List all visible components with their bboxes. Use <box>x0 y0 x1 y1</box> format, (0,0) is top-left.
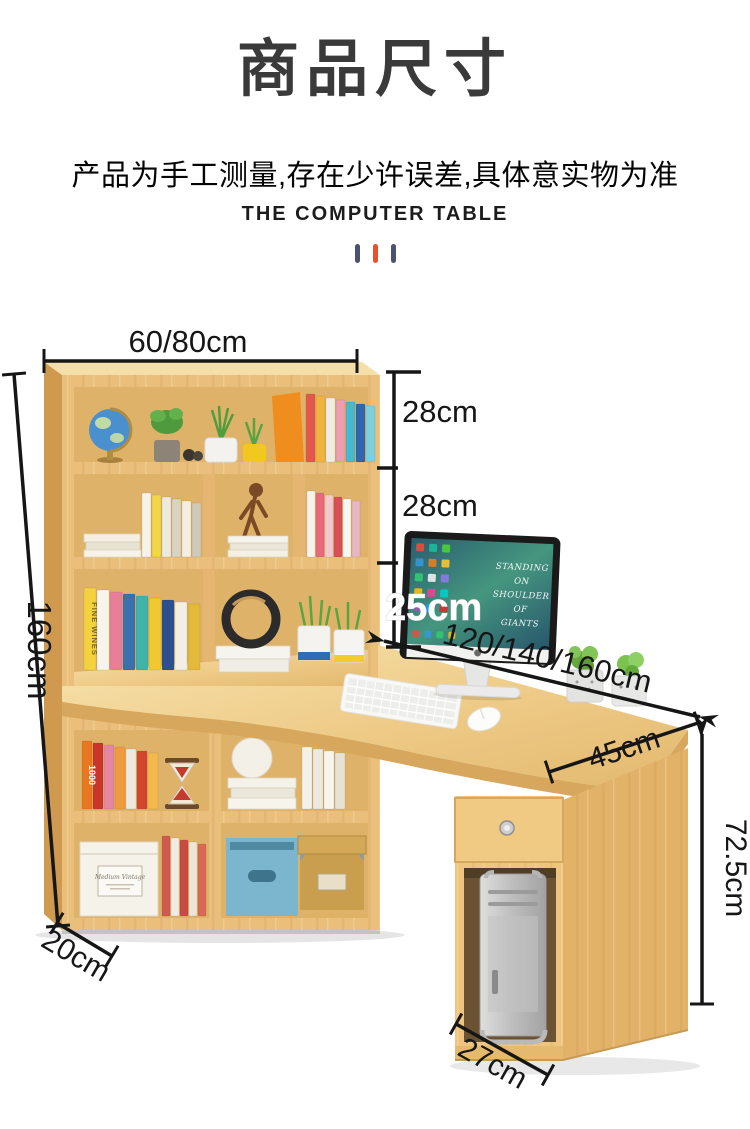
divider-bar <box>355 244 360 263</box>
drawer <box>455 798 563 862</box>
dim-hutch-width: 60/80cm <box>129 330 248 359</box>
dim-shelf-middle: 28cm <box>402 488 478 523</box>
dim-total-height: 160cm <box>21 600 58 699</box>
storage-box: Medium Vintage <box>80 842 158 916</box>
svg-text:GIANTS: GIANTS <box>501 618 540 630</box>
dim-shelf-top: 28cm <box>402 394 478 429</box>
pc-tower <box>480 872 546 1042</box>
product-dimensions-page: 商品尺寸 产品为手工测量,存在少许误差,具体意实物为准 THE COMPUTER… <box>0 0 750 1129</box>
blue-storage-bin <box>226 838 298 916</box>
page-title: 商品尺寸 <box>0 34 750 105</box>
dim-desk-height: 72.5cm <box>719 819 750 917</box>
tan-storage-box <box>298 836 366 910</box>
book-spine-text: FINE WINES <box>90 602 99 656</box>
book-row <box>162 836 206 916</box>
furniture-diagram: FINE WINES 1000 <box>0 330 750 1129</box>
book-spine-text: 1000 <box>87 765 97 785</box>
english-caption: THE COMPUTER TABLE <box>0 203 750 226</box>
svg-text:OF: OF <box>513 604 528 615</box>
flat-book-stack <box>84 534 141 557</box>
divider-bars <box>0 244 750 263</box>
divider-bar <box>391 244 396 263</box>
book-row <box>306 394 375 462</box>
svg-text:ON: ON <box>514 576 530 587</box>
divider-bar <box>373 244 378 263</box>
binoculars <box>193 451 203 461</box>
storage-box-label: Medium Vintage <box>94 874 146 881</box>
measure-disclaimer: 产品为手工测量,存在少许误差,具体意实物为准 <box>0 152 750 194</box>
orange-file-box <box>272 392 304 462</box>
